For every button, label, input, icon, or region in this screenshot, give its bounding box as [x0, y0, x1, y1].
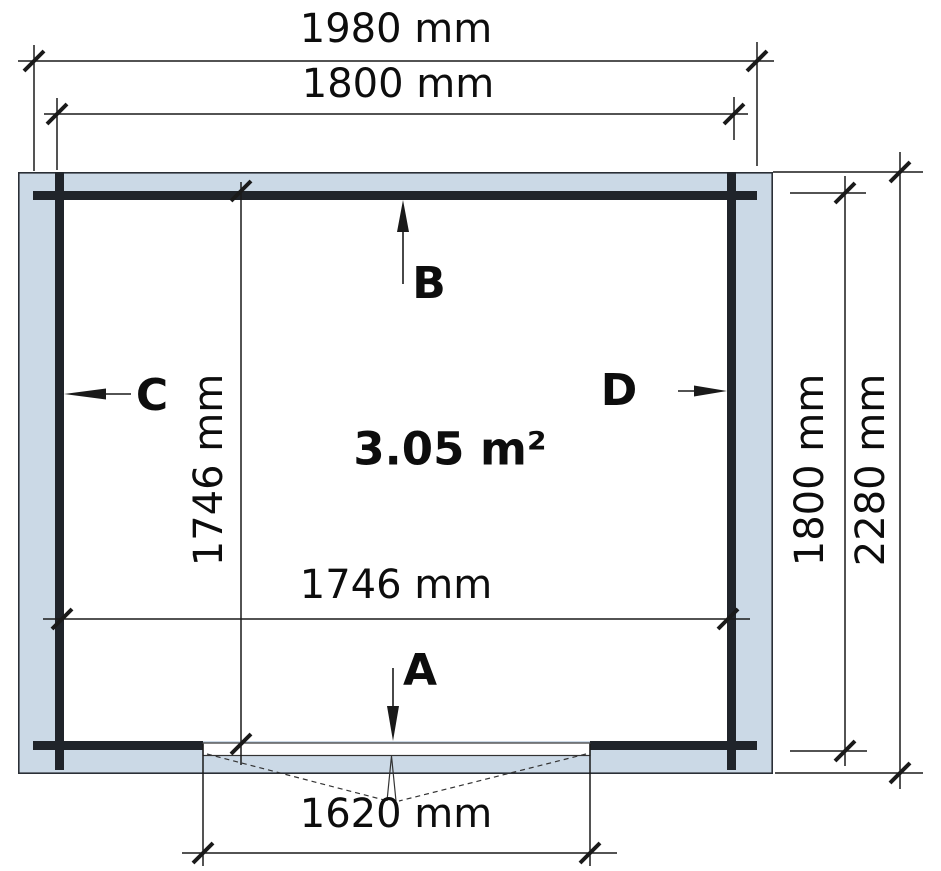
front-wall-log-right [590, 741, 757, 750]
front-wall-log-left [33, 741, 203, 750]
wall-marker-c: C [136, 374, 168, 418]
back-wall-log [33, 191, 757, 200]
dim-label-top-outer: 1980 mm [300, 9, 492, 49]
dim-label-top-inner: 1800 mm [302, 64, 494, 104]
dim-label-side-outer: 2280 mm [851, 374, 891, 566]
left-wall-log [55, 172, 64, 770]
right-wall-log [727, 172, 736, 770]
dim-label-side-inner: 1800 mm [790, 374, 830, 566]
floor-area-label: 3.05 m² [353, 427, 546, 472]
door-slab [203, 743, 590, 756]
dim-label-interior-width: 1746 mm [300, 565, 492, 605]
wall-marker-b: B [412, 262, 446, 306]
dim-label-door: 1620 mm [300, 794, 492, 834]
floor-plan-drawing: 1980 mm 1800 mm 1746 mm 1746 mm 1800 mm … [0, 0, 941, 871]
wall-marker-d: D [601, 369, 638, 413]
wall-marker-a: A [403, 649, 437, 693]
dim-label-interior-depth: 1746 mm [189, 374, 229, 566]
